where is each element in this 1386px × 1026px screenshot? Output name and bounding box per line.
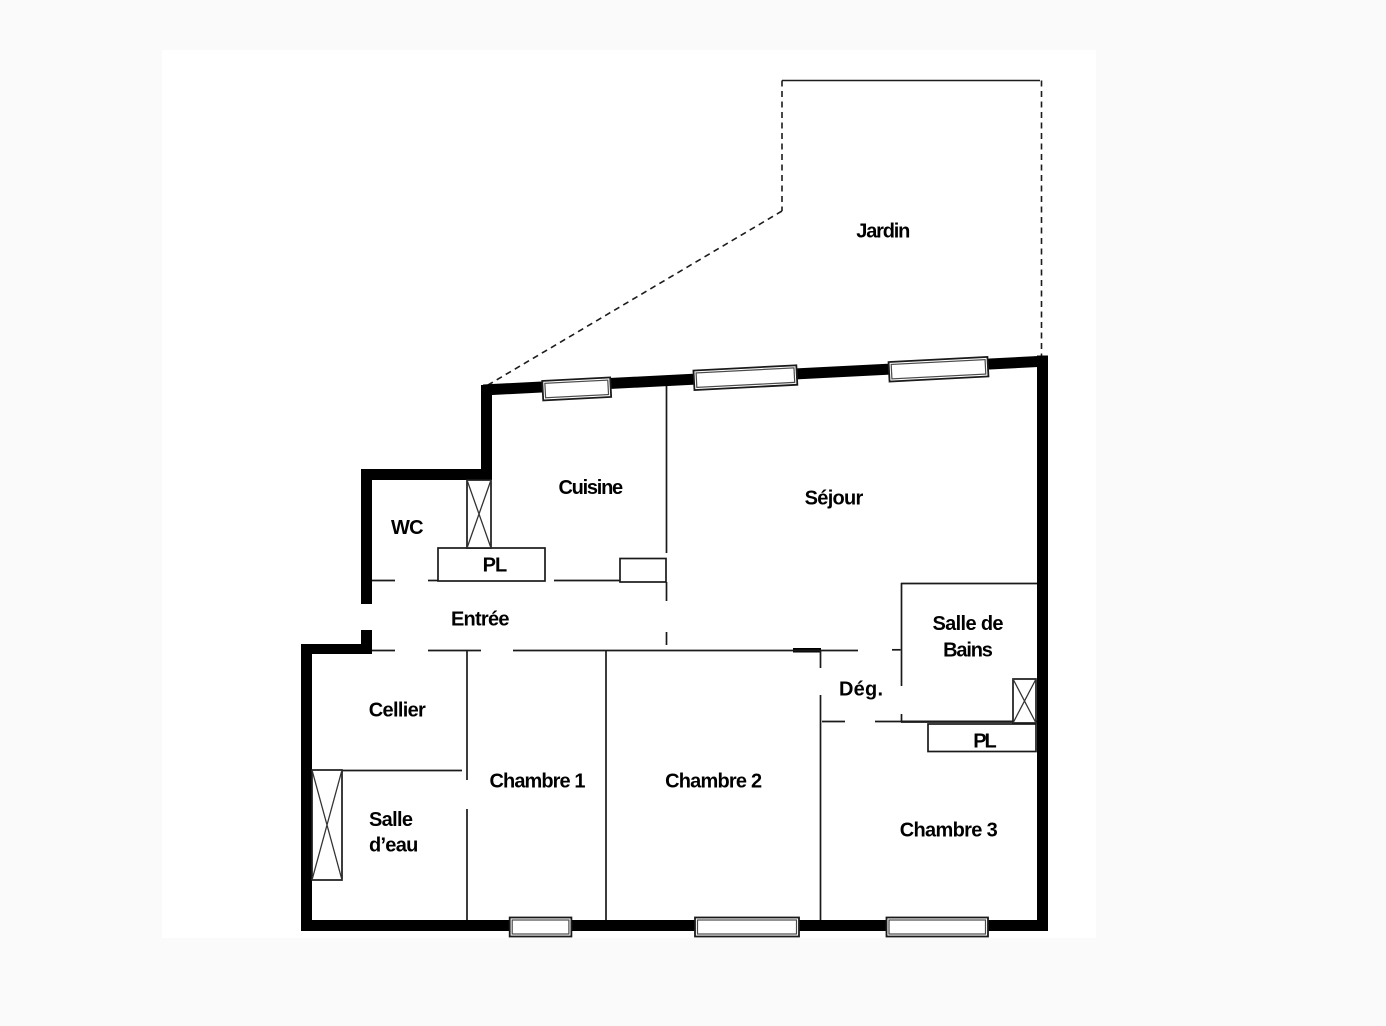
svg-text:Chambre 1: Chambre 1 xyxy=(490,771,586,793)
svg-text:Jardin: Jardin xyxy=(856,221,910,243)
svg-text:Séjour: Séjour xyxy=(805,487,864,509)
svg-text:PL: PL xyxy=(483,555,508,577)
svg-text:Entrée: Entrée xyxy=(451,609,510,631)
svg-text:Bains: Bains xyxy=(943,639,993,661)
svg-text:WC: WC xyxy=(391,517,424,539)
svg-text:Salle de: Salle de xyxy=(933,613,1004,635)
svg-text:Cuisine: Cuisine xyxy=(558,477,623,499)
svg-text:Salle: Salle xyxy=(369,809,413,831)
svg-text:Dég.: Dég. xyxy=(839,679,883,701)
svg-text:Chambre 2: Chambre 2 xyxy=(665,771,762,793)
svg-text:Cellier: Cellier xyxy=(369,700,426,722)
svg-text:Chambre 3: Chambre 3 xyxy=(900,819,998,841)
svg-text:PL: PL xyxy=(973,730,996,752)
svg-text:d’eau: d’eau xyxy=(369,835,418,857)
